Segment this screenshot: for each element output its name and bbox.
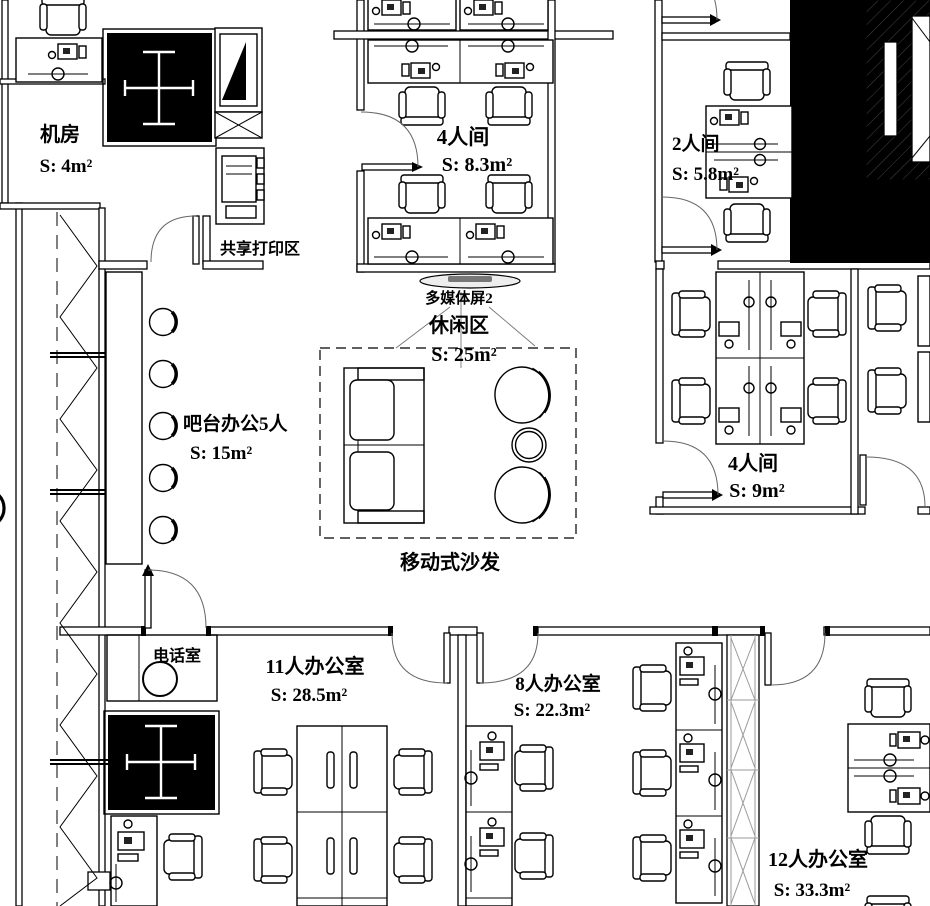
room-label-leisure: 休闲区 <box>428 313 489 337</box>
workstation-left-bottom <box>110 816 202 906</box>
area-label-room4-top: S: 8.3m² <box>442 154 512 176</box>
bar-area <box>106 272 177 564</box>
area-label-office11: S: 28.5m² <box>271 685 348 706</box>
label-shared-print: 共享打印区 <box>220 239 300 258</box>
stool <box>150 309 177 336</box>
area-label-leisure: S: 25m² <box>431 344 496 366</box>
floor-plan-canvas: 机房 S: 4m² 共享打印区 4人间 S: 8.3m² 2人间 S: 5.8m… <box>0 0 930 906</box>
elevator-bottom <box>104 711 219 814</box>
room-label-room2: 2人间 <box>672 133 720 155</box>
right-partial-room <box>860 276 930 507</box>
floor-plan: 机房 S: 4m² 共享打印区 4人间 S: 8.3m² 2人间 S: 5.8m… <box>0 0 930 906</box>
room-label-machine-room: 机房 <box>40 122 80 146</box>
room-label-room4-right: 4人间 <box>728 452 778 475</box>
sofa <box>344 368 424 523</box>
room-label-office12: 12人办公室 <box>768 847 868 871</box>
chair <box>40 0 86 35</box>
area-label-room4-right: S: 9m² <box>729 480 784 502</box>
room-label-office11: 11人办公室 <box>266 654 365 678</box>
leisure-area <box>320 274 576 538</box>
label-mobile-sofa: 移动式沙发 <box>400 550 501 574</box>
room2 <box>662 62 792 256</box>
printer <box>216 148 264 224</box>
label-media-screen: 多媒体屏2 <box>425 289 493 307</box>
area-label-office8: S: 22.3m² <box>514 700 591 721</box>
room-label-bar: 吧台办公5人 <box>183 412 289 435</box>
area-label-bar: S: 15m² <box>190 443 252 464</box>
area-label-machine-room: S: 4m² <box>40 156 93 177</box>
stair-core <box>790 0 930 263</box>
armchair <box>491 363 553 426</box>
room-label-office8: 8人办公室 <box>515 672 601 695</box>
shaft-column <box>727 635 759 906</box>
bar-counter <box>106 272 142 564</box>
label-paren: ） <box>0 493 26 527</box>
label-phone-room: 电话室 <box>153 646 201 665</box>
room-label-room4-top: 4人间 <box>437 125 490 149</box>
area-label-office12: S: 33.3m² <box>774 880 851 901</box>
corridor-top-door <box>662 0 721 26</box>
area-label-room2: S: 5.8m² <box>672 164 739 185</box>
elevator-top <box>103 29 216 146</box>
